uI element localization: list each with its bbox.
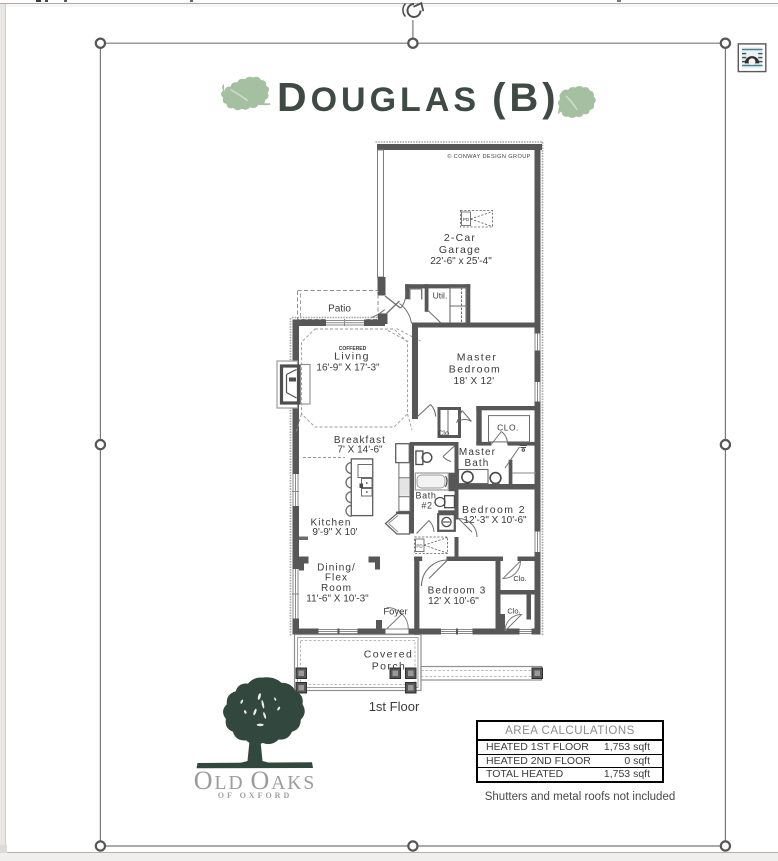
svg-text:Covered: Covered bbox=[364, 649, 414, 661]
svg-text:9'-9" X 10': 9'-9" X 10' bbox=[312, 527, 357, 538]
svg-text:Master: Master bbox=[459, 447, 496, 458]
svg-text:11'-6" X 10'-3": 11'-6" X 10'-3" bbox=[306, 594, 369, 605]
svg-text:Master: Master bbox=[457, 352, 498, 364]
svg-text:Living: Living bbox=[334, 351, 370, 363]
svg-text:Foyer: Foyer bbox=[383, 607, 407, 618]
svg-text:12' X 10'-6": 12' X 10'-6" bbox=[428, 596, 479, 607]
svg-text:12'-3" X 10'-6": 12'-3" X 10'-6" bbox=[463, 515, 527, 526]
svg-text:Flex: Flex bbox=[325, 573, 348, 584]
svg-text:Bath: Bath bbox=[465, 458, 490, 469]
svg-text:Clo.: Clo. bbox=[513, 574, 526, 583]
svg-text:Porch: Porch bbox=[372, 661, 406, 673]
svg-text:Room: Room bbox=[321, 583, 352, 594]
svg-text:16'-9" X 17'-3": 16'-9" X 17'-3" bbox=[316, 363, 380, 374]
svg-text:2-Car: 2-Car bbox=[444, 232, 476, 244]
svg-text:Clo: Clo bbox=[438, 429, 449, 438]
svg-text:7' X 14'-6": 7' X 14'-6" bbox=[337, 445, 383, 456]
svg-text:PD: PD bbox=[416, 544, 423, 549]
svg-text:1st Floor: 1st Floor bbox=[369, 699, 420, 714]
svg-text:CLO.: CLO. bbox=[497, 423, 519, 433]
svg-text:PD: PD bbox=[463, 217, 470, 222]
svg-text:Bath: Bath bbox=[416, 491, 437, 501]
svg-text:Garage: Garage bbox=[439, 244, 481, 256]
svg-text:Util.: Util. bbox=[433, 291, 448, 301]
svg-text:#2: #2 bbox=[421, 501, 432, 511]
svg-text:Bedroom: Bedroom bbox=[449, 364, 501, 376]
svg-text:Patio: Patio bbox=[328, 304, 351, 315]
svg-text:© CONWAY DESIGN GROUP: © CONWAY DESIGN GROUP bbox=[447, 153, 531, 160]
svg-text:Clo.: Clo. bbox=[507, 607, 520, 616]
svg-text:18' X 12': 18' X 12' bbox=[454, 376, 495, 387]
svg-text:22'-6" x 25'-4": 22'-6" x 25'-4" bbox=[430, 256, 492, 267]
svg-text:Bedroom 3: Bedroom 3 bbox=[428, 586, 487, 597]
